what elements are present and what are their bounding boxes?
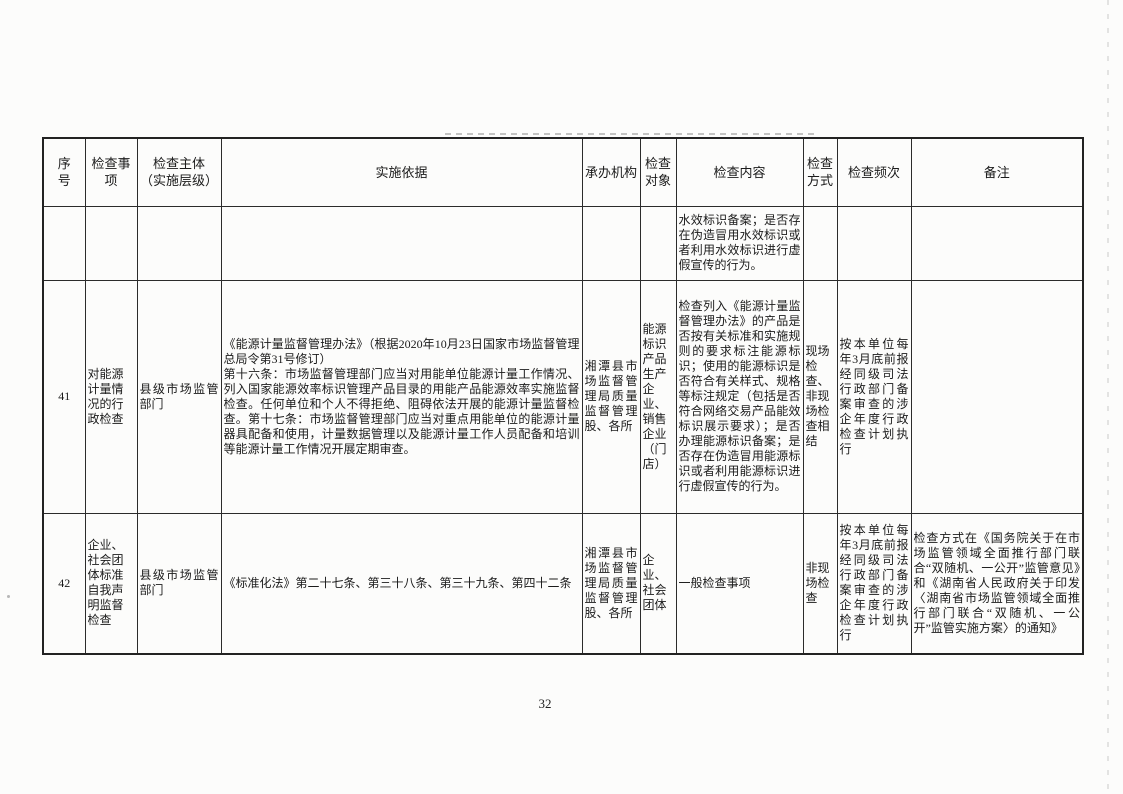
cell-target: 企业、社会团体: [640, 513, 676, 654]
cell-content: 检查列入《能源计量监督管理办法》的产品是否按有关标准和实施规则的要求标注能源标识…: [676, 280, 803, 513]
scan-dot-artifact: [7, 595, 10, 598]
cell-item: [85, 206, 137, 280]
col-header-frequency: 检查频次: [837, 138, 911, 206]
col-header-agency: 承办机构: [582, 138, 640, 206]
cell-basis: [221, 206, 582, 280]
col-header-subject: 检查主体 （实施层级）: [137, 138, 221, 206]
cell-seq: [43, 206, 85, 280]
scan-smudge-artifact: [445, 133, 815, 135]
cell-subject: 县级市场监管部门: [137, 513, 221, 654]
cell-agency: [582, 206, 640, 280]
cell-frequency: [837, 206, 911, 280]
table-row-42: 42 企业、社会团体标准自我声明监督检查 县级市场监管部门 《标准化法》第二十七…: [43, 513, 1083, 654]
cell-remark: [911, 280, 1083, 513]
cell-basis: 《能源计量监督管理办法》（根据2020年10月23日国家市场监督管理总局令第31…: [221, 280, 582, 513]
cell-remark: 检查方式在《国务院关于在市场监管领域全面推行部门联合“双随机、一公开”监管意见》…: [911, 513, 1083, 654]
cell-remark: [911, 206, 1083, 280]
cell-seq: 41: [43, 280, 85, 513]
cell-frequency: 按本单位每年3月底前报经同级司法行政部门备案审查的涉企年度行政检查计划执行: [837, 280, 911, 513]
col-header-remark: 备注: [911, 138, 1083, 206]
cell-method: 非现场检查: [803, 513, 837, 654]
scan-edge-artifact: [1107, 0, 1109, 794]
table-header-row: 序 号 检查事项 检查主体 （实施层级） 实施依据 承办机构 检查对象 检查内容…: [43, 138, 1083, 206]
cell-agency: 湘潭县市场监督管理局质量监督管理股、各所: [582, 513, 640, 654]
cell-subject: 县级市场监管部门: [137, 280, 221, 513]
col-header-content: 检查内容: [676, 138, 803, 206]
cell-target: 能源标识产品生产企业、销售企业（门店）: [640, 280, 676, 513]
table-row-continuation: 水效标识备案；是否存在伪造冒用水效标识或者利用水效标识进行虚假宣传的行为。: [43, 206, 1083, 280]
cell-content: 一般检查事项: [676, 513, 803, 654]
cell-content: 水效标识备案；是否存在伪造冒用水效标识或者利用水效标识进行虚假宣传的行为。: [676, 206, 803, 280]
inspection-items-table: 序 号 检查事项 检查主体 （实施层级） 实施依据 承办机构 检查对象 检查内容…: [42, 137, 1084, 655]
col-header-target: 检查对象: [640, 138, 676, 206]
scanned-document-page: 序 号 检查事项 检查主体 （实施层级） 实施依据 承办机构 检查对象 检查内容…: [0, 0, 1123, 794]
cell-frequency: 按本单位每年3月底前报经同级司法行政部门备案审查的涉企年度行政检查计划执行: [837, 513, 911, 654]
cell-item: 企业、社会团体标准自我声明监督检查: [85, 513, 137, 654]
cell-basis: 《标准化法》第二十七条、第三十八条、第三十九条、第四十二条: [221, 513, 582, 654]
col-header-seq: 序 号: [43, 138, 85, 206]
page-number: 32: [0, 696, 1090, 712]
cell-method: 现场检查、非现场检查相结: [803, 280, 837, 513]
cell-seq: 42: [43, 513, 85, 654]
col-header-item: 检查事项: [85, 138, 137, 206]
cell-method: [803, 206, 837, 280]
col-header-method: 检查方式: [803, 138, 837, 206]
col-header-basis: 实施依据: [221, 138, 582, 206]
cell-target: [640, 206, 676, 280]
cell-subject: [137, 206, 221, 280]
table-row-41: 41 对能源计量情况的行政检查 县级市场监管部门 《能源计量监督管理办法》（根据…: [43, 280, 1083, 513]
cell-agency: 湘潭县市场监督管理局质量监督管理股、各所: [582, 280, 640, 513]
cell-item: 对能源计量情况的行政检查: [85, 280, 137, 513]
